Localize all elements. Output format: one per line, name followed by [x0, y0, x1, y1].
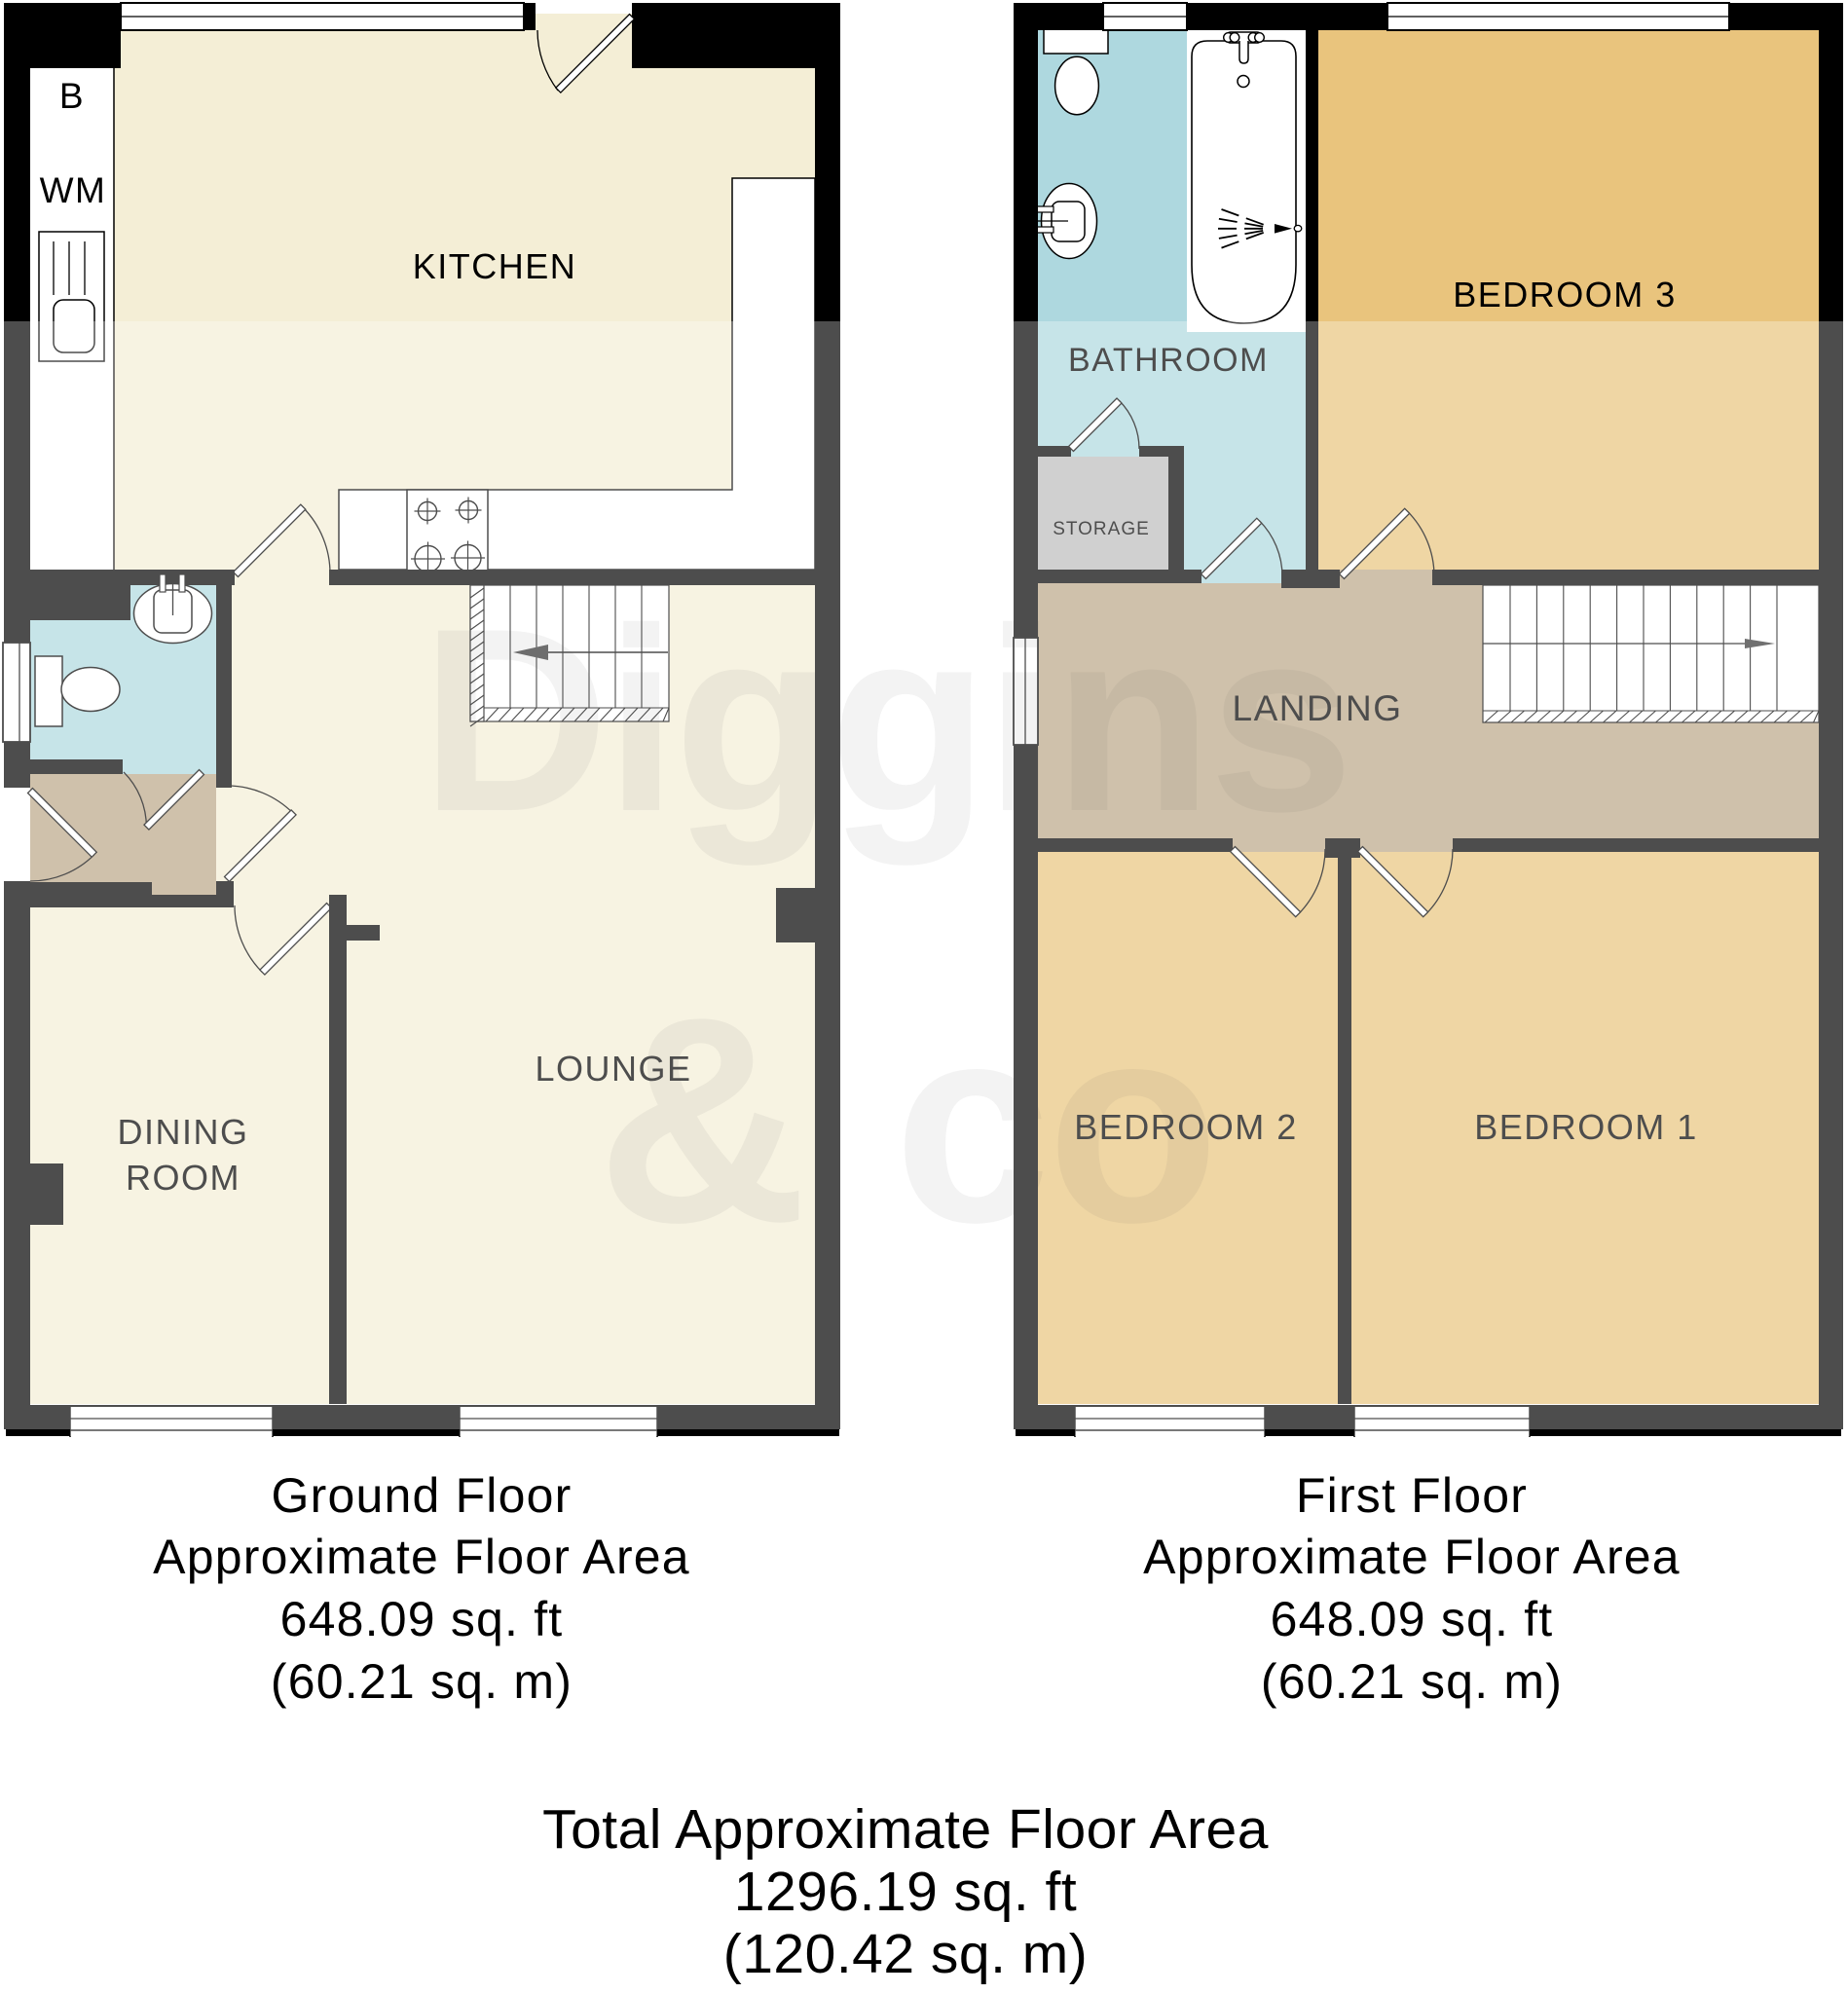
svg-text:Diggins: Diggins	[421, 573, 1350, 868]
svg-text:co: co	[894, 966, 1215, 1281]
svg-text:648.09 sq. ft: 648.09 sq. ft	[280, 1592, 564, 1646]
svg-text:Ground Floor: Ground Floor	[272, 1468, 573, 1523]
svg-text:First Floor: First Floor	[1296, 1468, 1528, 1523]
svg-text:(60.21 sq. m): (60.21 sq. m)	[271, 1654, 573, 1709]
svg-text:B: B	[59, 76, 85, 116]
svg-text:KITCHEN: KITCHEN	[413, 246, 577, 286]
svg-text:648.09 sq. ft: 648.09 sq. ft	[1271, 1592, 1554, 1646]
svg-text:Total Approximate Floor Area: Total Approximate Floor Area	[542, 1798, 1269, 1861]
svg-text:1296.19 sq. ft: 1296.19 sq. ft	[734, 1861, 1077, 1923]
svg-text:(120.42 sq. m): (120.42 sq. m)	[723, 1923, 1089, 1985]
svg-text:BEDROOM 3: BEDROOM 3	[1453, 275, 1677, 314]
svg-text:(60.21 sq. m): (60.21 sq. m)	[1261, 1654, 1563, 1709]
svg-text:Approximate Floor Area: Approximate Floor Area	[1143, 1530, 1681, 1584]
svg-text:&: &	[597, 956, 808, 1283]
svg-text:Approximate Floor Area: Approximate Floor Area	[153, 1530, 690, 1584]
svg-text:WM: WM	[40, 170, 107, 210]
